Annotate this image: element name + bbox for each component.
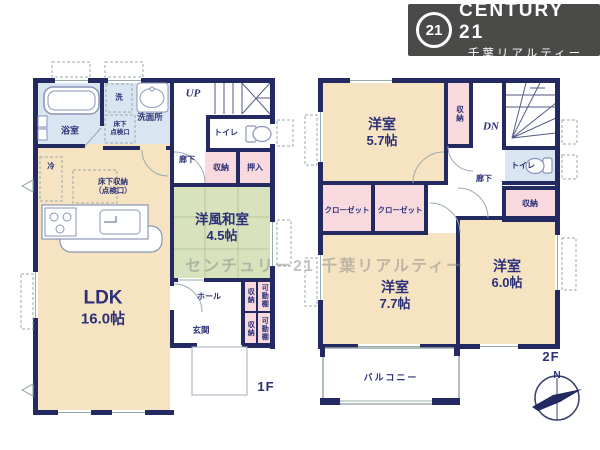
toilet-label-2f: トイレ bbox=[511, 161, 535, 171]
logo-text: CENTURY 21 千葉リアルティー bbox=[459, 0, 592, 61]
room-c-name: 洋室 bbox=[491, 258, 522, 275]
room-c-label: 洋室 6.0帖 bbox=[491, 258, 522, 290]
fridge-label: 冷 bbox=[47, 162, 55, 171]
century21-seal-icon: 21 bbox=[416, 12, 452, 48]
compass-icon bbox=[532, 376, 582, 420]
balcony-label: バルコニー bbox=[364, 373, 419, 384]
washer-label: 洗 bbox=[115, 93, 123, 102]
storage-label-1f: 収納 bbox=[213, 163, 229, 173]
room-a-size: 5.7帖 bbox=[366, 133, 397, 149]
shelf-b-label: 可動棚 bbox=[260, 317, 268, 341]
ldk-name: LDK bbox=[81, 288, 125, 311]
entrance-label: 玄関 bbox=[192, 325, 209, 335]
washroom-label: 洗面所 bbox=[137, 112, 163, 122]
room-b-name: 洋室 bbox=[379, 279, 410, 296]
hallway-label-1f: 廊下 bbox=[179, 155, 195, 165]
underfloor-storage-line2: （点検口） bbox=[94, 186, 132, 195]
underfloor-storage-label: 床下収納 （点検口） bbox=[94, 177, 132, 195]
logo-subtitle: 千葉リアルティー bbox=[468, 45, 583, 61]
room-b-label: 洋室 7.7帖 bbox=[379, 279, 410, 311]
room-c-size: 6.0帖 bbox=[491, 275, 522, 291]
hallway-label-2f: 廊下 bbox=[476, 174, 492, 184]
toilet-label-1f: トイレ bbox=[214, 128, 238, 138]
room-a-label: 洋室 5.7帖 bbox=[366, 116, 397, 148]
watermark: センチュリー21 千葉リアルティー bbox=[185, 252, 464, 276]
underfloor-hatch-label: 床下 点検口 bbox=[110, 121, 130, 137]
floorplan-canvas: 浴室 洗 洗面所 床下 点検口 冷 床下収納 （点検口） LDK 16.0帖 U… bbox=[0, 0, 600, 450]
storage-b-label: 収納 bbox=[246, 321, 254, 337]
ldk-size: 16.0帖 bbox=[81, 310, 125, 328]
closet-a-label: クローゼット bbox=[325, 206, 370, 215]
tatami-room-name: 洋風和室 bbox=[195, 212, 249, 228]
room-b-size: 7.7帖 bbox=[379, 296, 410, 312]
underfloor-hatch-line2: 点検口 bbox=[110, 129, 130, 137]
storage-a-label: 収納 bbox=[246, 288, 254, 304]
floor2-tag: 2F bbox=[542, 349, 559, 365]
compass-north-label: N bbox=[553, 370, 560, 382]
underfloor-storage-line1: 床下収納 bbox=[94, 177, 132, 186]
century21-logo: 21 CENTURY 21 千葉リアルティー bbox=[408, 4, 600, 56]
bath-label: 浴室 bbox=[61, 126, 79, 137]
room-a-name: 洋室 bbox=[366, 116, 397, 133]
ldk-label: LDK 16.0帖 bbox=[81, 288, 125, 329]
shelf-a-label: 可動棚 bbox=[260, 284, 268, 308]
tatami-room-size: 4.5帖 bbox=[195, 228, 249, 244]
closet-b-label: クローゼット bbox=[378, 206, 423, 215]
underfloor-hatch-line1: 床下 bbox=[110, 121, 130, 129]
floor1-tag: 1F bbox=[257, 379, 274, 395]
storage-right-label: 収納 bbox=[522, 199, 538, 209]
stairs-up-label: UP bbox=[186, 87, 201, 100]
logo-brand: CENTURY 21 bbox=[459, 0, 592, 44]
oshiire-label: 押入 bbox=[247, 163, 263, 173]
stairs-down-label: DN bbox=[483, 120, 499, 133]
tatami-room-label: 洋風和室 4.5帖 bbox=[195, 212, 249, 244]
floor2-plan-graphics bbox=[0, 0, 600, 450]
hall-label: ホール bbox=[197, 292, 221, 302]
storage-top-label: 収納 bbox=[456, 106, 465, 123]
